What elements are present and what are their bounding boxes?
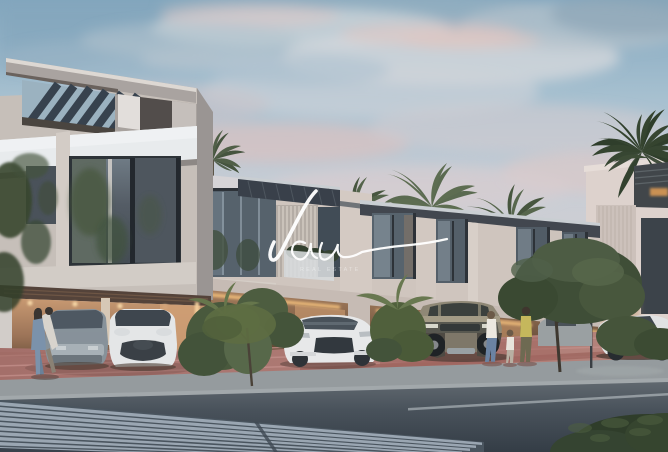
- svg-text:REAL ESTATE: REAL ESTATE: [300, 267, 360, 273]
